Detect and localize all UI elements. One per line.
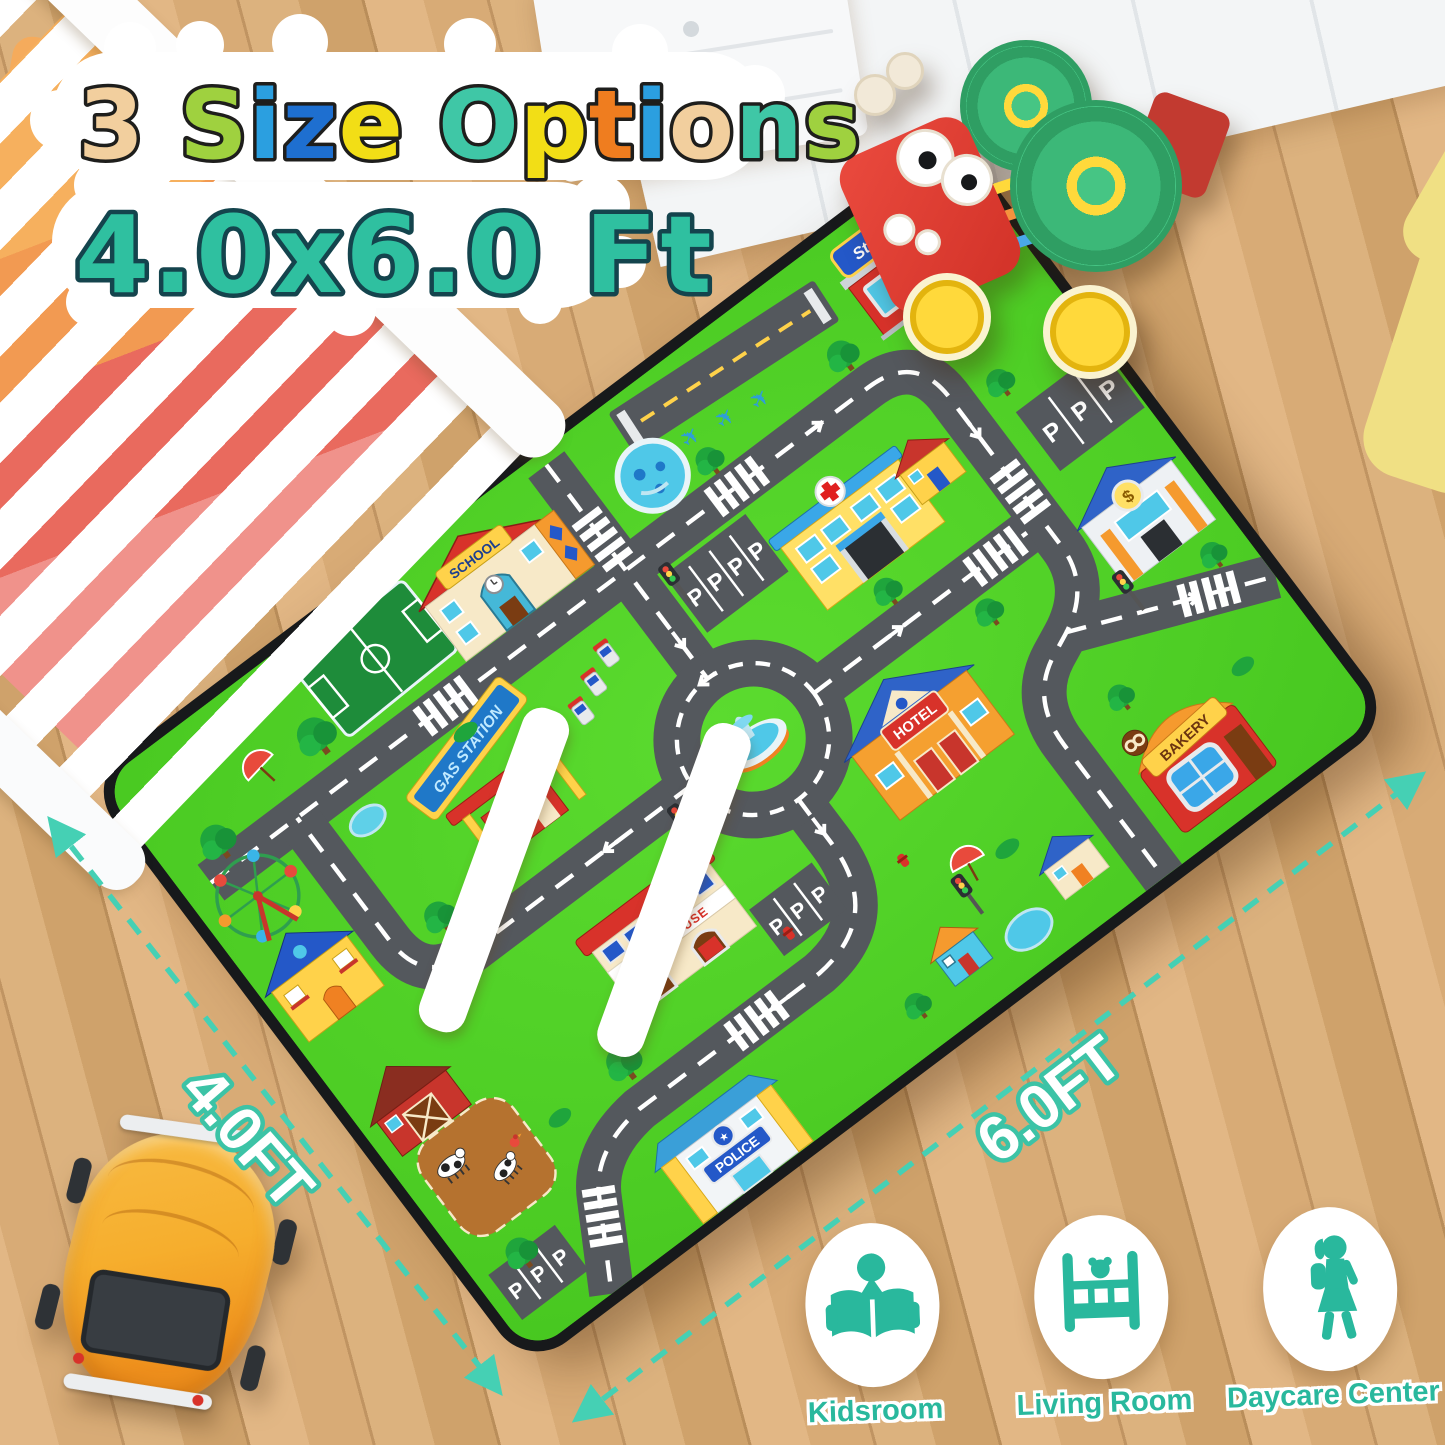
usage-icons: Kidsroom Living Room [767,1203,1444,1431]
usage-label: Living Room [1016,1384,1193,1423]
toy-car [0,1092,368,1445]
product-photo: P P P P P P P P P P P P P [0,0,1445,1445]
crib-icon [1031,1213,1171,1382]
usage-daycare: Daycare Center [1224,1204,1436,1416]
usage-label: Daycare Center [1226,1375,1440,1415]
toy-train [840,40,1230,370]
train-wheel [1050,292,1130,372]
train-wheel [1010,100,1182,272]
train-wheel [910,280,984,354]
walking-girl-icon [1260,1205,1400,1374]
usage-label: Kidsroom [807,1393,943,1431]
yellow-toy-edge [1392,113,1445,278]
usage-living-room: Living Room [995,1212,1207,1424]
reading-child-icon [802,1221,942,1390]
usage-kidsroom: Kidsroom [767,1220,979,1432]
dimension-label-bottom: 6.0FT [964,1023,1135,1176]
